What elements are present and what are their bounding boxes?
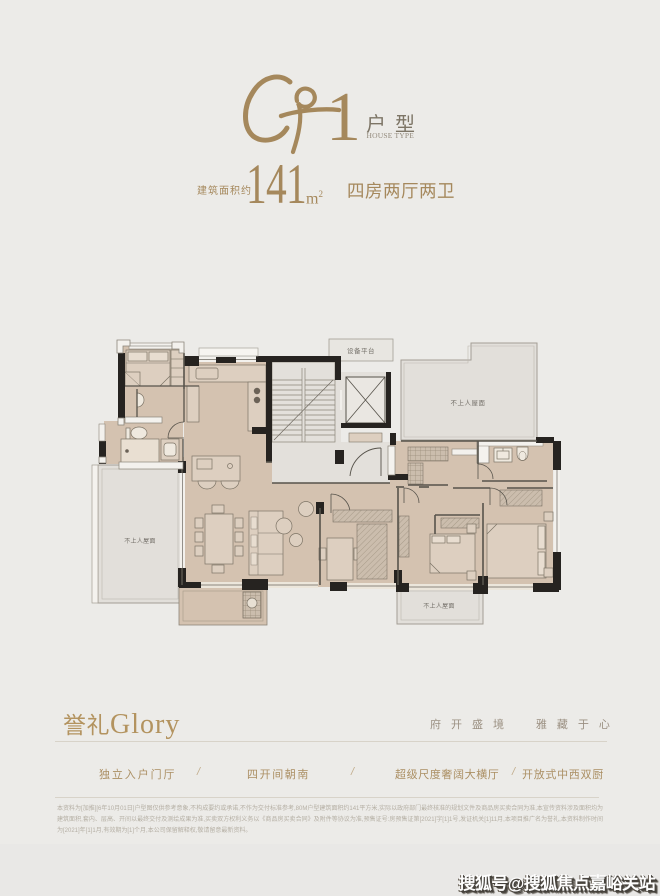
svg-text:不上人屋面: 不上人屋面	[451, 398, 486, 407]
svg-text:不上人屋面: 不上人屋面	[124, 537, 156, 545]
svg-text:设备平台: 设备平台	[347, 346, 375, 355]
svg-text:不上人屋面: 不上人屋面	[423, 602, 455, 610]
